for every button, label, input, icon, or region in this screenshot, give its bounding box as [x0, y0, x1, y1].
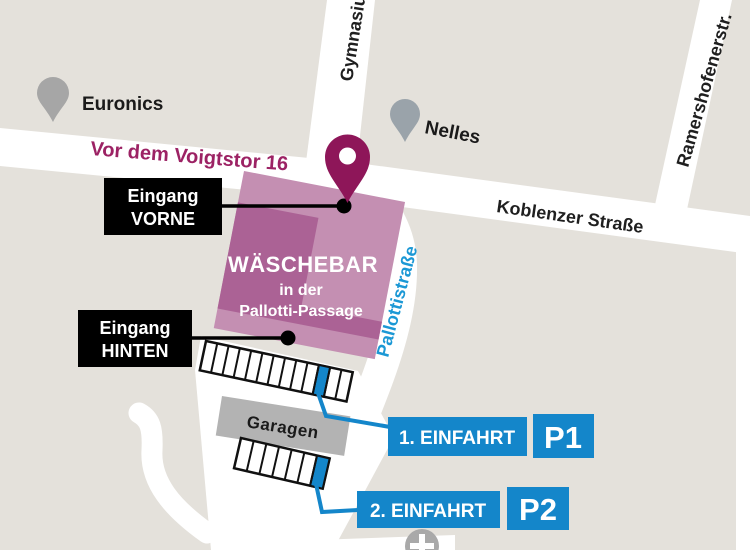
entry2-label: 2. EINFAHRT — [370, 501, 487, 522]
entry1-label: 1. EINFAHRT — [399, 428, 516, 449]
entrance-front-line2: VORNE — [131, 209, 195, 229]
entrance-back-dot — [281, 331, 296, 346]
entry1-badge: P1 — [544, 420, 582, 455]
location-pin-hole — [339, 148, 356, 165]
entrance-back-line1: Eingang — [100, 318, 171, 338]
cross-marker-hbar — [410, 543, 434, 549]
entrance-front-dot — [337, 199, 352, 214]
building-subtitle-2: Pallotti-Passage — [239, 303, 363, 320]
map-canvas: WÄSCHEBAR in der Pallotti-Passage Garage… — [0, 0, 750, 550]
euronics-label: Euronics — [82, 94, 163, 115]
entrance-front-line1: Eingang — [128, 186, 199, 206]
street-right-edge — [736, 239, 750, 550]
waeschebar-building: WÄSCHEBAR in der Pallotti-Passage — [214, 171, 405, 359]
entry1-group: 1. EINFAHRT P1 — [388, 414, 594, 458]
city-map: WÄSCHEBAR in der Pallotti-Passage Garage… — [0, 0, 750, 550]
building-title: WÄSCHEBAR — [228, 252, 378, 277]
entrance-back-line2: HINTEN — [102, 341, 169, 361]
entry2-group: 2. EINFAHRT P2 — [357, 487, 569, 530]
building-subtitle-1: in der — [279, 282, 323, 299]
entry2-badge: P2 — [519, 492, 557, 527]
